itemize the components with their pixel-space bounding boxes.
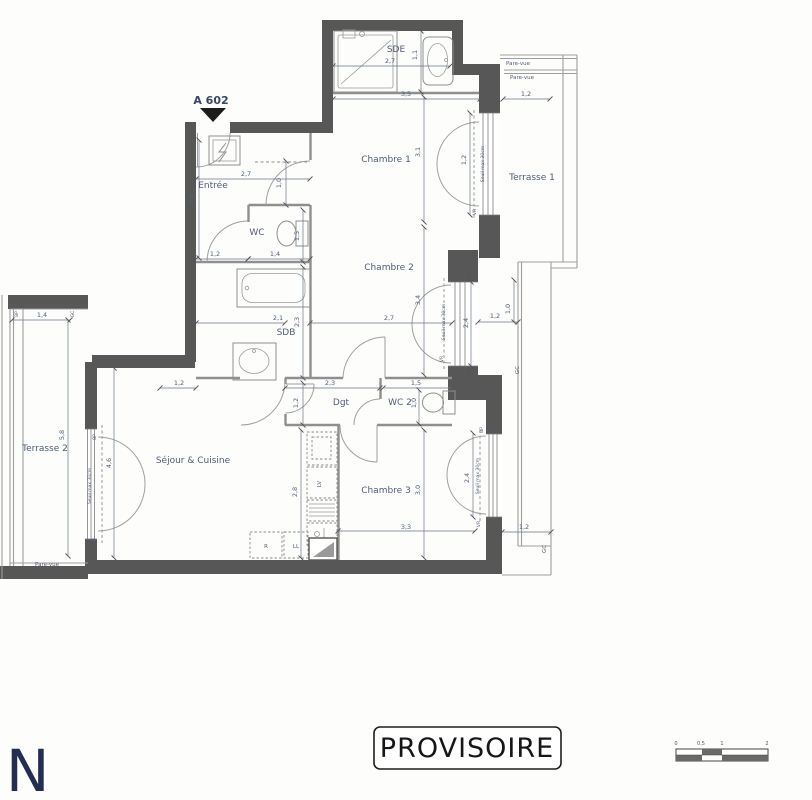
seuil-label-win4: Seuil max 30cm	[87, 468, 93, 504]
electrical-panel	[209, 136, 240, 165]
dim-chambre2-width: 2,7	[384, 314, 394, 322]
room-label-terrasse2: Terrasse 2	[21, 444, 68, 454]
provisional-stamp: PROVISOIRE	[374, 727, 561, 769]
scale-tick-2: 2	[765, 741, 768, 747]
gc-label-2: GC	[542, 545, 548, 553]
dim-window1: 1,2	[460, 155, 468, 165]
seuil-label-win1: Seuil max 30cm	[480, 146, 486, 182]
vr-label-win2: VR	[439, 356, 445, 362]
room-label-dgt: Dgt	[333, 398, 350, 408]
dishwasher-label: LV	[317, 481, 323, 487]
dim-kitchen-height: 2,8	[291, 487, 299, 497]
scale-bar: 0 0,5 1 2	[674, 741, 768, 761]
dim-sde-width: 2,7	[385, 57, 395, 65]
gc-label-3: GC	[70, 311, 76, 318]
dim-terrasse2-width: 1,4	[37, 311, 47, 319]
room-label-wc2: WC 2	[388, 398, 412, 408]
floor-plan-drawing: A 602 SDE Chambre 1 Entrée WC Chambre 2 …	[0, 0, 812, 800]
bp-label-win2-top: BP	[462, 274, 468, 280]
dim-gap-width: 1,2	[490, 312, 500, 320]
dim-wc2-width: 1,5	[411, 379, 421, 387]
window-chambre3	[447, 430, 502, 521]
window-sejour	[85, 425, 145, 543]
sde-washbasin	[423, 37, 453, 85]
dim-entree-width: 2,7	[241, 170, 251, 178]
room-label-sdb: SDB	[277, 328, 296, 338]
unit-marker: A 602	[193, 94, 228, 122]
stamp-text: PROVISOIRE	[380, 733, 554, 764]
scale-tick-0: 0	[674, 741, 677, 747]
dim-sejour-window: 4,6	[105, 458, 113, 468]
bp-label-t2: BP	[14, 311, 20, 317]
dim-sejour-top: 1,2	[174, 379, 184, 387]
washer-label: LL	[293, 544, 300, 550]
vr-label-win1: VR	[472, 209, 478, 215]
dim-chambre1-height: 3,1	[414, 147, 422, 157]
dim-sdb-height: 2,3	[293, 317, 301, 327]
vr-label-win3: VR	[476, 521, 482, 527]
dim-terrasse2-height: 5,8	[58, 430, 66, 440]
dim-door1: 1,0	[275, 178, 283, 188]
dim-terrasse1-width: 1,2	[521, 90, 531, 98]
dim-wc-offset: 1,2	[210, 250, 220, 258]
dim-wc2-height: 1,0	[410, 398, 418, 408]
room-label-sejour: Séjour & Cuisine	[156, 455, 231, 466]
bp-label-win4: BP	[92, 434, 98, 440]
bp-label-win3: BP	[479, 427, 485, 433]
dim-chambre3-width: 3,3	[401, 523, 411, 531]
bp-label-win1: BP	[479, 107, 485, 113]
dim-sde-depth: 1,1	[411, 50, 419, 60]
room-label-terrasse1: Terrasse 1	[508, 173, 555, 183]
dim-top-width: 3,5	[401, 90, 411, 98]
gc-label-1: GC	[515, 366, 521, 374]
room-label-wc: WC	[249, 228, 264, 238]
dim-wc-height: 1,5	[293, 231, 301, 241]
terrace2-outline	[2, 295, 88, 579]
dim-dgt-height: 1,2	[292, 398, 300, 408]
dim-dgt-width: 2,3	[325, 379, 335, 387]
floor-plan-page: A 602 SDE Chambre 1 Entrée WC Chambre 2 …	[0, 0, 812, 800]
pare-vue-label-3: Pare-vue	[35, 562, 60, 568]
dim-entree-height: 3,0	[188, 194, 196, 204]
dim-terrasse1-low-width: 1,2	[519, 523, 529, 531]
dim-chambre3-height: 3,0	[414, 485, 422, 495]
room-label-chambre3: Chambre 3	[361, 486, 411, 496]
walls-group	[0, 20, 502, 579]
seuil-label-win2: Seuil max 30cm	[441, 304, 447, 340]
dim-window3: 2,4	[463, 473, 471, 483]
window-chambre1	[437, 110, 500, 218]
pare-vue-label-2: Pare-vue	[510, 75, 535, 81]
room-label-chambre2: Chambre 2	[364, 263, 414, 273]
dim-gap-height: 1,0	[504, 304, 512, 314]
room-label-chambre1: Chambre 1	[361, 155, 411, 165]
logo-letter: N	[6, 737, 49, 800]
bathtub	[237, 269, 310, 307]
room-label-sde: SDE	[387, 45, 406, 55]
pare-vue-label-1: Pare-vue	[506, 61, 531, 67]
duct-shaft	[309, 538, 337, 560]
unit-number-label: A 602	[193, 94, 228, 107]
vr-label-win4: VR	[91, 538, 97, 544]
entrance-arrow-icon	[200, 108, 226, 122]
fridge-label: R	[264, 544, 268, 550]
room-label-entree: Entrée	[198, 180, 228, 191]
bp-label-win2-bottom: BP	[462, 368, 468, 374]
dim-chambre2-height: 3,4	[414, 295, 422, 305]
dim-wc-width: 1,4	[270, 250, 280, 258]
seuil-label-win3: Seuil max 30cm	[475, 458, 481, 494]
scale-tick-1: 1	[720, 741, 723, 747]
dim-window2: 2,4	[462, 318, 470, 328]
scale-tick-05: 0,5	[697, 741, 705, 747]
dim-sdb-width: 2,1	[273, 314, 283, 322]
sdb-washbasin	[233, 343, 276, 380]
